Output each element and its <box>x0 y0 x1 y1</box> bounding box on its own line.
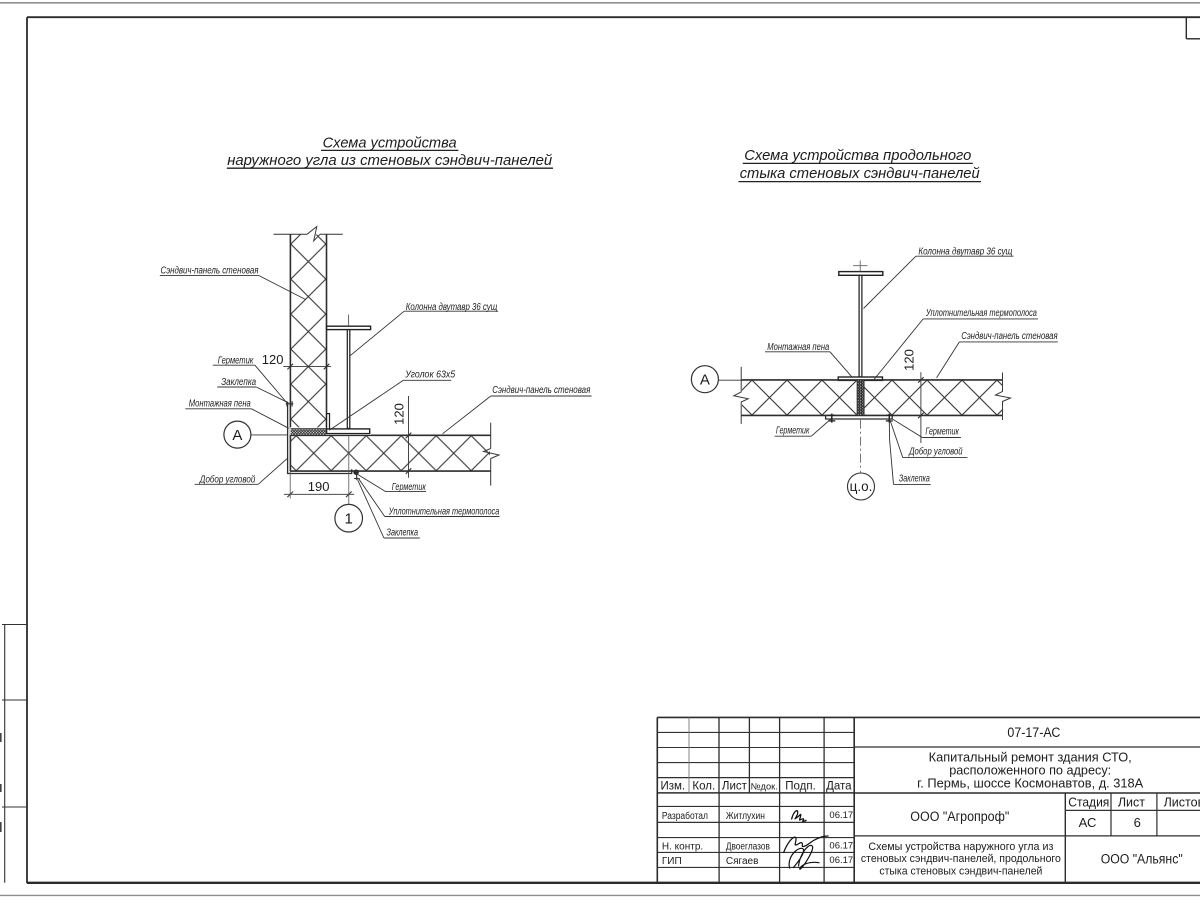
svg-text:Н. контр.: Н. контр. <box>662 841 703 852</box>
svg-text:Сягаев: Сягаев <box>726 856 759 867</box>
svg-text:06.17: 06.17 <box>829 810 853 821</box>
svg-text:Добор угловой: Добор угловой <box>199 473 256 485</box>
svg-text:Изм.: Изм. <box>660 780 685 792</box>
svg-text:стеновых сэндвич-панелей, прод: стеновых сэндвич-панелей, продольного <box>861 853 1061 865</box>
svg-text:расположенного по адресу:: расположенного по адресу: <box>949 763 1111 777</box>
svg-text:Капитальный ремонт здания СТО,: Капитальный ремонт здания СТО, <box>929 750 1132 764</box>
svg-text:Дата: Дата <box>826 780 852 792</box>
svg-text:Колонна двутавр 36 сущ: Колонна двутавр 36 сущ <box>918 246 1012 257</box>
svg-text:Добор угловой: Добор угловой <box>908 446 963 458</box>
svg-text:Схема устройства: Схема устройства <box>323 135 457 152</box>
svg-text:Заклепка: Заклепка <box>387 528 419 539</box>
svg-text:07-17-АС: 07-17-АС <box>1007 725 1060 740</box>
svg-text:№док.: №док. <box>751 782 778 792</box>
svg-text:06.17: 06.17 <box>829 855 853 866</box>
svg-text:наружного угла из стеновых сэн: наружного угла из стеновых сэндвич-панел… <box>227 152 553 169</box>
svg-text:АС: АС <box>1079 815 1097 830</box>
svg-text:Житлухин: Житлухин <box>726 811 765 822</box>
svg-text:Сэндвич-панель стеновая: Сэндвич-панель стеновая <box>492 385 591 396</box>
svg-text:6: 6 <box>1134 815 1141 830</box>
svg-text:Схема устройства продольного: Схема устройства продольного <box>744 147 971 164</box>
svg-text:ц.о.: ц.о. <box>850 479 873 494</box>
svg-text:Двоеглазов: Двоеглазов <box>726 841 770 852</box>
svg-text:Уплотнительная термополоса: Уплотнительная термополоса <box>388 507 500 518</box>
svg-text:Уплотнительная термополоса: Уплотнительная термополоса <box>925 308 1037 319</box>
svg-text:Сэндвич-панель стеновая: Сэндвич-панель стеновая <box>961 331 1058 342</box>
svg-text:120: 120 <box>262 352 284 367</box>
svg-text:Уголок 63х5: Уголок 63х5 <box>404 370 455 381</box>
svg-text:Герметик: Герметик <box>925 427 959 438</box>
svg-text:Сэндвич-панель стеновая: Сэндвич-панель стеновая <box>161 265 260 276</box>
svg-text:ООО "Агропроф": ООО "Агропроф" <box>910 809 1009 824</box>
svg-text:стыка стеновых сэндвич-панелей: стыка стеновых сэндвич-панелей <box>879 866 1042 878</box>
svg-text:Герметик: Герметик <box>776 426 810 437</box>
svg-text:г. Пермь, шоссе Космонавтов, д: г. Пермь, шоссе Космонавтов, д. 318А <box>917 777 1144 791</box>
svg-text:Лист: Лист <box>722 780 748 792</box>
svg-text:190: 190 <box>308 479 330 494</box>
svg-text:ГИП: ГИП <box>662 856 682 867</box>
svg-text:120: 120 <box>392 403 407 425</box>
svg-text:Разработал: Разработал <box>662 810 708 822</box>
svg-text:А: А <box>232 427 242 444</box>
svg-text:Стадия: Стадия <box>1068 795 1109 809</box>
svg-text:А: А <box>700 372 710 389</box>
svg-text:Подп.: Подп. <box>785 780 816 792</box>
svg-text:Заклепка: Заклепка <box>899 474 930 485</box>
svg-text:стыка стеновых сэндвич-панелей: стыка стеновых сэндвич-панелей <box>740 165 981 182</box>
svg-text:Схемы устройства наружного угл: Схемы устройства наружного угла из <box>868 841 1053 853</box>
svg-text:Лист: Лист <box>1118 795 1145 809</box>
svg-text:120: 120 <box>902 349 917 371</box>
svg-text:Кол.: Кол. <box>692 780 715 792</box>
svg-text:Монтажная пена: Монтажная пена <box>767 342 829 353</box>
svg-text:Листов: Листов <box>1164 795 1200 809</box>
svg-text:06.17: 06.17 <box>829 840 853 851</box>
svg-text:ООО "Альянс": ООО "Альянс" <box>1101 852 1183 867</box>
svg-text:1: 1 <box>345 511 353 528</box>
svg-text:Монтажная пена: Монтажная пена <box>189 399 251 410</box>
